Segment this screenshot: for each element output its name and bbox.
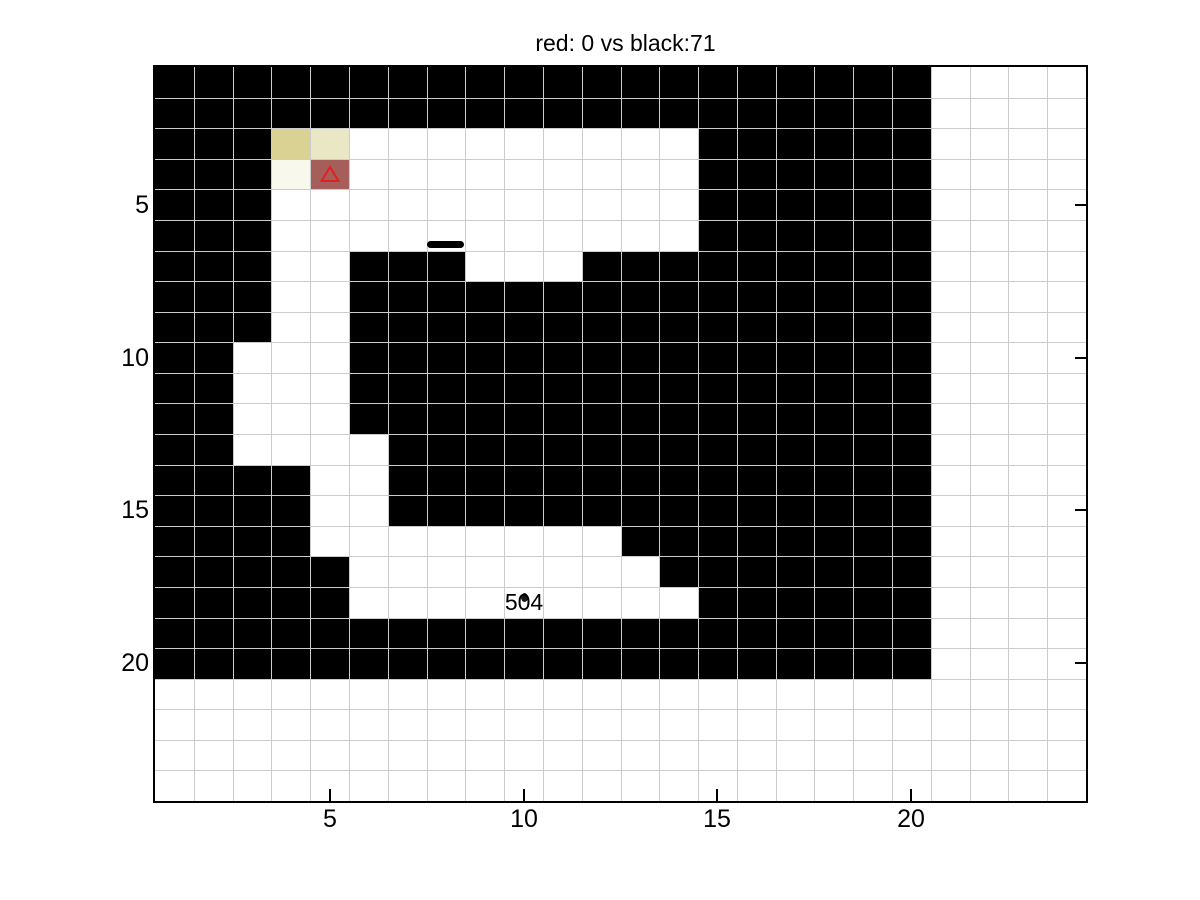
y-axis-tick xyxy=(155,662,166,664)
maze-wall-cells xyxy=(155,251,271,281)
y-tick-label: 20 xyxy=(49,648,149,678)
y-axis-tick-right xyxy=(1075,357,1086,359)
gridline-h xyxy=(155,98,1086,99)
x-axis-tick-top xyxy=(716,67,718,79)
marker-dot xyxy=(521,593,528,602)
maze-wall-cells xyxy=(155,220,271,251)
x-axis-tick-top xyxy=(523,67,525,79)
gridline-h xyxy=(155,679,1086,680)
gridline-h xyxy=(155,587,1086,588)
x-axis-tick-top xyxy=(329,67,331,79)
gridline-h xyxy=(155,220,1086,221)
special-cell xyxy=(271,159,310,189)
maze-wall-cells xyxy=(155,556,349,587)
maze-wall-cells xyxy=(349,373,931,403)
special-cell xyxy=(271,128,310,159)
maze-wall-cells xyxy=(349,281,931,312)
gridline-h xyxy=(155,526,1086,527)
gridline-h xyxy=(155,128,1086,129)
maze-wall-cells xyxy=(155,128,271,159)
maze-wall-cells xyxy=(155,159,271,189)
gridline-h xyxy=(155,403,1086,404)
y-tick-label: 15 xyxy=(49,495,149,525)
x-tick-label: 5 xyxy=(290,805,370,833)
gridline-h xyxy=(155,373,1086,374)
gridline-h xyxy=(155,159,1086,160)
gridline-h xyxy=(155,495,1086,496)
x-axis-tick xyxy=(329,789,331,801)
gridline-h xyxy=(155,281,1086,282)
x-tick-label: 20 xyxy=(871,805,951,833)
maze-wall-cells xyxy=(582,251,931,281)
special-cell xyxy=(310,128,349,159)
gridline-h xyxy=(155,556,1086,557)
gridline-h xyxy=(155,312,1086,313)
maze-wall-cells xyxy=(349,342,931,373)
maze-wall-cells xyxy=(659,556,931,587)
maze-wall-cells xyxy=(349,403,931,434)
maze-wall-cells xyxy=(349,251,465,281)
gridline-h xyxy=(155,342,1086,343)
gridline-h xyxy=(155,740,1086,741)
maze-wall-cells xyxy=(349,312,931,342)
y-axis-tick-right xyxy=(1075,204,1086,206)
y-axis-tick-right xyxy=(1075,509,1086,511)
x-tick-label: 10 xyxy=(484,805,564,833)
red-triangle-marker xyxy=(318,164,342,184)
maze-wall-cells xyxy=(155,312,271,342)
x-axis-tick xyxy=(523,789,525,801)
y-axis-tick xyxy=(155,357,166,359)
gridline-h xyxy=(155,434,1086,435)
gridline-h xyxy=(155,709,1086,710)
y-axis-tick xyxy=(155,204,166,206)
maze-wall-cells xyxy=(155,189,271,220)
gridline-h xyxy=(155,465,1086,466)
figure-canvas: red: 0 vs black:71 504 5101520 5101520 xyxy=(0,0,1200,900)
x-axis-tick-top xyxy=(910,67,912,79)
maze-wall-cells xyxy=(155,587,349,618)
gridline-h xyxy=(155,618,1086,619)
gridline-h xyxy=(155,648,1086,649)
x-axis-tick xyxy=(910,789,912,801)
y-axis-tick-right xyxy=(1075,662,1086,664)
y-tick-label: 5 xyxy=(49,190,149,220)
plot-title: red: 0 vs black:71 xyxy=(160,30,1091,56)
x-axis-tick xyxy=(716,789,718,801)
maze-wall-cells xyxy=(155,281,271,312)
x-tick-label: 15 xyxy=(677,805,757,833)
y-tick-label: 10 xyxy=(49,343,149,373)
path-segment xyxy=(427,241,464,248)
gridline-h xyxy=(155,251,1086,252)
y-axis-tick xyxy=(155,509,166,511)
plot-area: 504 xyxy=(153,65,1088,803)
gridline-h xyxy=(155,770,1086,771)
gridline-h xyxy=(155,189,1086,190)
